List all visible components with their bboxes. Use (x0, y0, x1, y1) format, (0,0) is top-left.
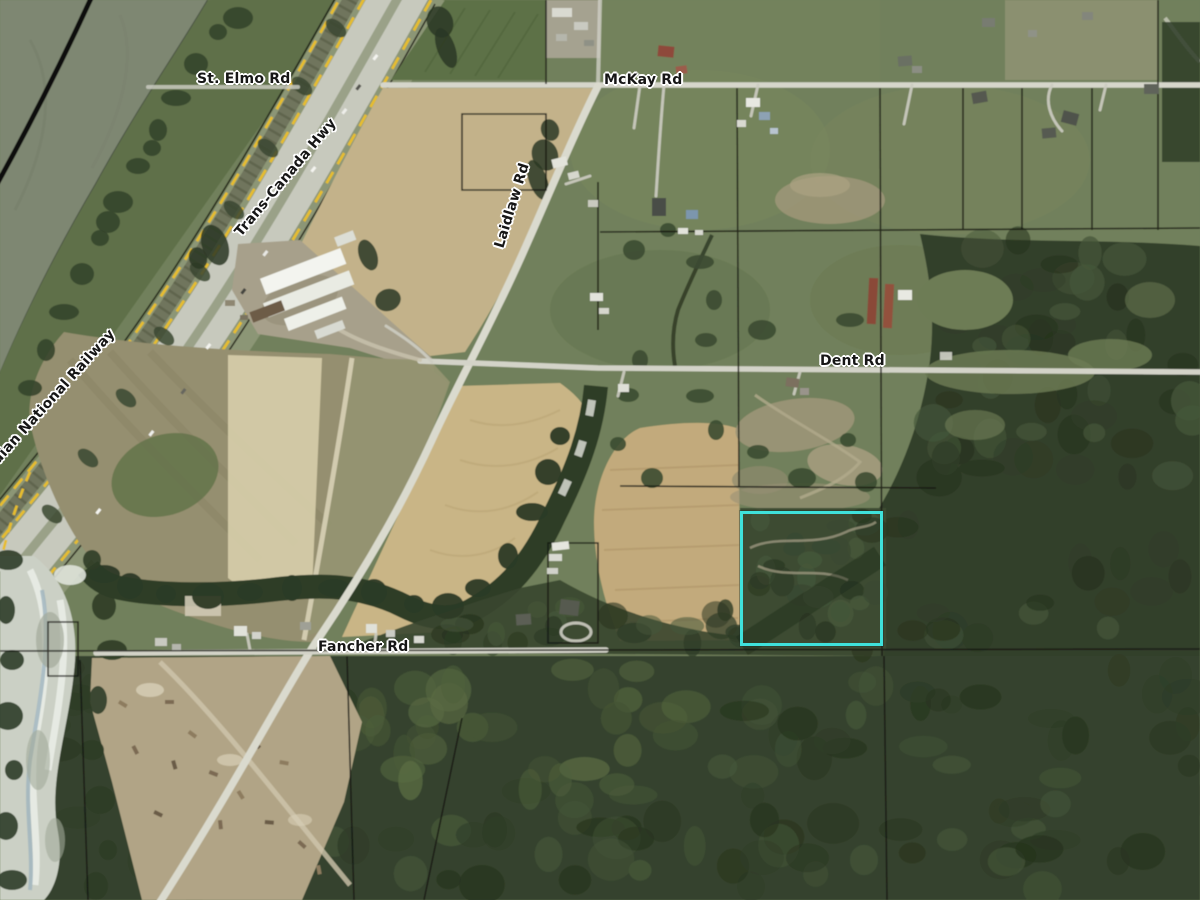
subject-parcel-highlight[interactable] (740, 511, 883, 646)
road-label-dent-rd: Dent Rd (820, 353, 885, 371)
dark-barn (652, 198, 666, 216)
blue-roof-house (686, 210, 698, 219)
road-label-fancher-rd: Fancher Rd (318, 639, 409, 657)
road-label-st-elmo-rd: St. Elmo Rd (197, 71, 290, 89)
red-roof-house (657, 45, 674, 58)
aerial-imagery (0, 0, 1200, 900)
satellite-map[interactable]: St. Elmo Rd McKay Rd Trans-Canada Hwy Ca… (0, 0, 1200, 900)
road-label-mckay-rd: McKay Rd (604, 72, 683, 90)
